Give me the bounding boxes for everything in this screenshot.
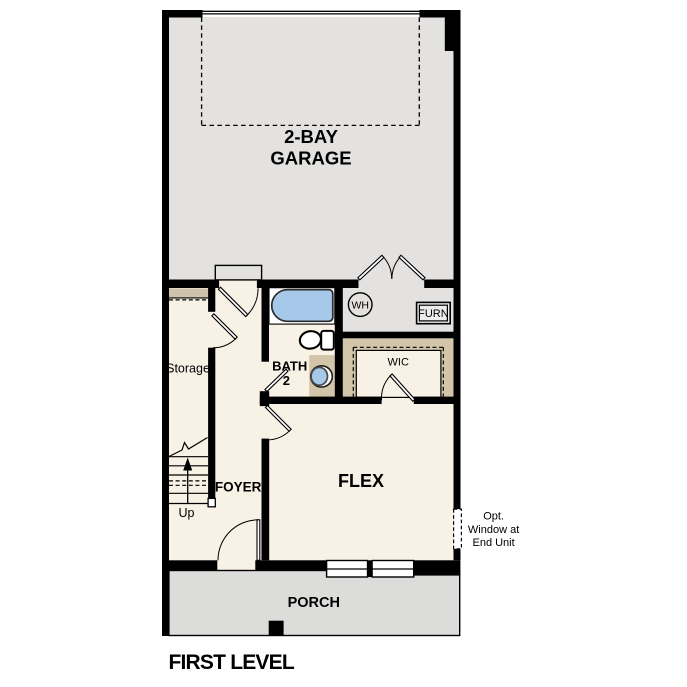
svg-text:End Unit: End Unit [472,537,514,549]
svg-text:FOYER: FOYER [215,479,262,494]
svg-text:Window at: Window at [468,524,519,536]
svg-text:2-BAY: 2-BAY [284,126,338,147]
svg-text:GARAGE: GARAGE [270,148,351,169]
svg-text:PORCH: PORCH [288,595,340,611]
svg-text:Opt.: Opt. [483,511,504,523]
svg-text:WH: WH [351,299,369,311]
svg-text:FLEX: FLEX [338,471,384,491]
svg-text:FURN: FURN [418,308,449,320]
svg-text:Up: Up [179,506,195,520]
svg-text:FIRST LEVEL: FIRST LEVEL [169,651,295,674]
svg-text:WIC: WIC [388,356,409,368]
svg-text:BATH: BATH [272,358,307,373]
svg-text:Storage: Storage [166,362,210,376]
